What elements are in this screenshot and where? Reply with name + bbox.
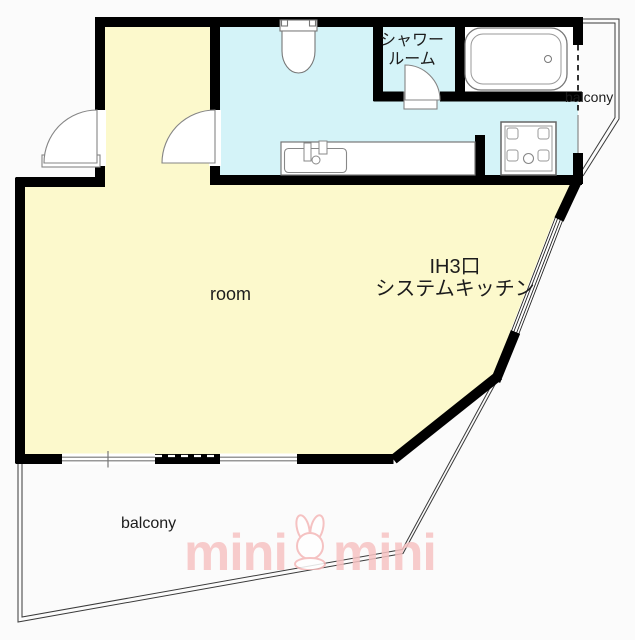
kitchen-label-line1: IH3口 — [355, 256, 555, 278]
kitchen-label: IH3口 システムキッチン — [355, 256, 555, 300]
watermark-rabbit-icon — [289, 514, 331, 583]
balcony-lower-label: balcony — [121, 515, 176, 533]
kitchen-label-line2: システムキッチン — [355, 278, 555, 300]
floor-plan: mini mini room IH3口 システムキッチン シャワー ルーム ba… — [0, 0, 635, 640]
washing-machine-pan-icon — [501, 122, 556, 175]
shower-label-line2: ルーム — [374, 50, 450, 69]
bathtub-icon — [465, 28, 567, 90]
watermark: mini mini — [184, 514, 436, 583]
watermark-text-right: mini — [333, 523, 436, 583]
faucet-icon — [304, 143, 311, 161]
toilet-icon — [280, 20, 317, 73]
watermark-text-left: mini — [184, 523, 287, 583]
room-label: room — [210, 284, 251, 305]
entrance-door-swing — [44, 110, 97, 163]
shower-room-label: シャワー ルーム — [374, 31, 450, 69]
window-right — [220, 454, 297, 465]
room-floor — [20, 182, 578, 459]
balcony-upper-label: balcony — [565, 89, 613, 105]
kitchen-counter-icon — [281, 141, 475, 175]
shower-label-line1: シャワー — [374, 31, 450, 50]
